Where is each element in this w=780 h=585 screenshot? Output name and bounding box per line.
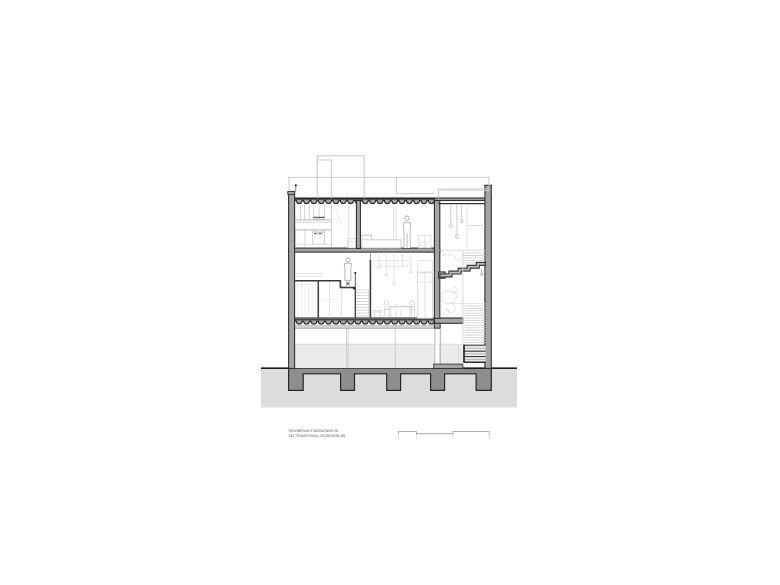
- svg-text:SECTIE/MATERIAAL DOORSNEDE BB: SECTIE/MATERIAAL DOORSNEDE BB: [289, 434, 346, 438]
- svg-text:NIEUWBOUW STADSWONING 34: NIEUWBOUW STADSWONING 34: [289, 429, 339, 433]
